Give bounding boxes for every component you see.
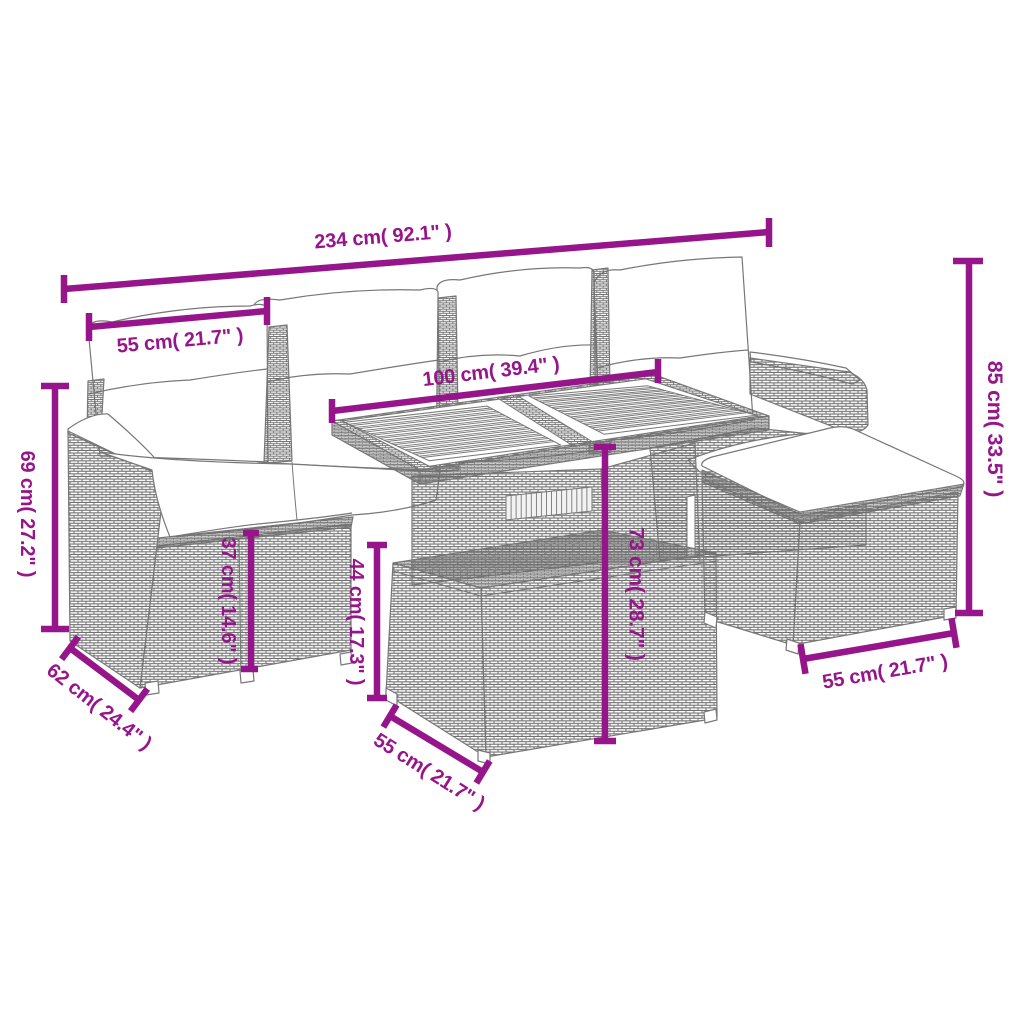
svg-text:85 cm( 33.5" ): 85 cm( 33.5" ) <box>983 361 1007 498</box>
svg-text:73 cm( 28.7" ): 73 cm( 28.7" ) <box>625 527 648 660</box>
svg-text:69 cm( 27.2" ): 69 cm( 27.2" ) <box>16 451 38 578</box>
svg-text:44 cm( 17.3" ): 44 cm( 17.3" ) <box>345 559 367 686</box>
svg-text:37 cm( 14.6" ): 37 cm( 14.6" ) <box>217 538 239 665</box>
